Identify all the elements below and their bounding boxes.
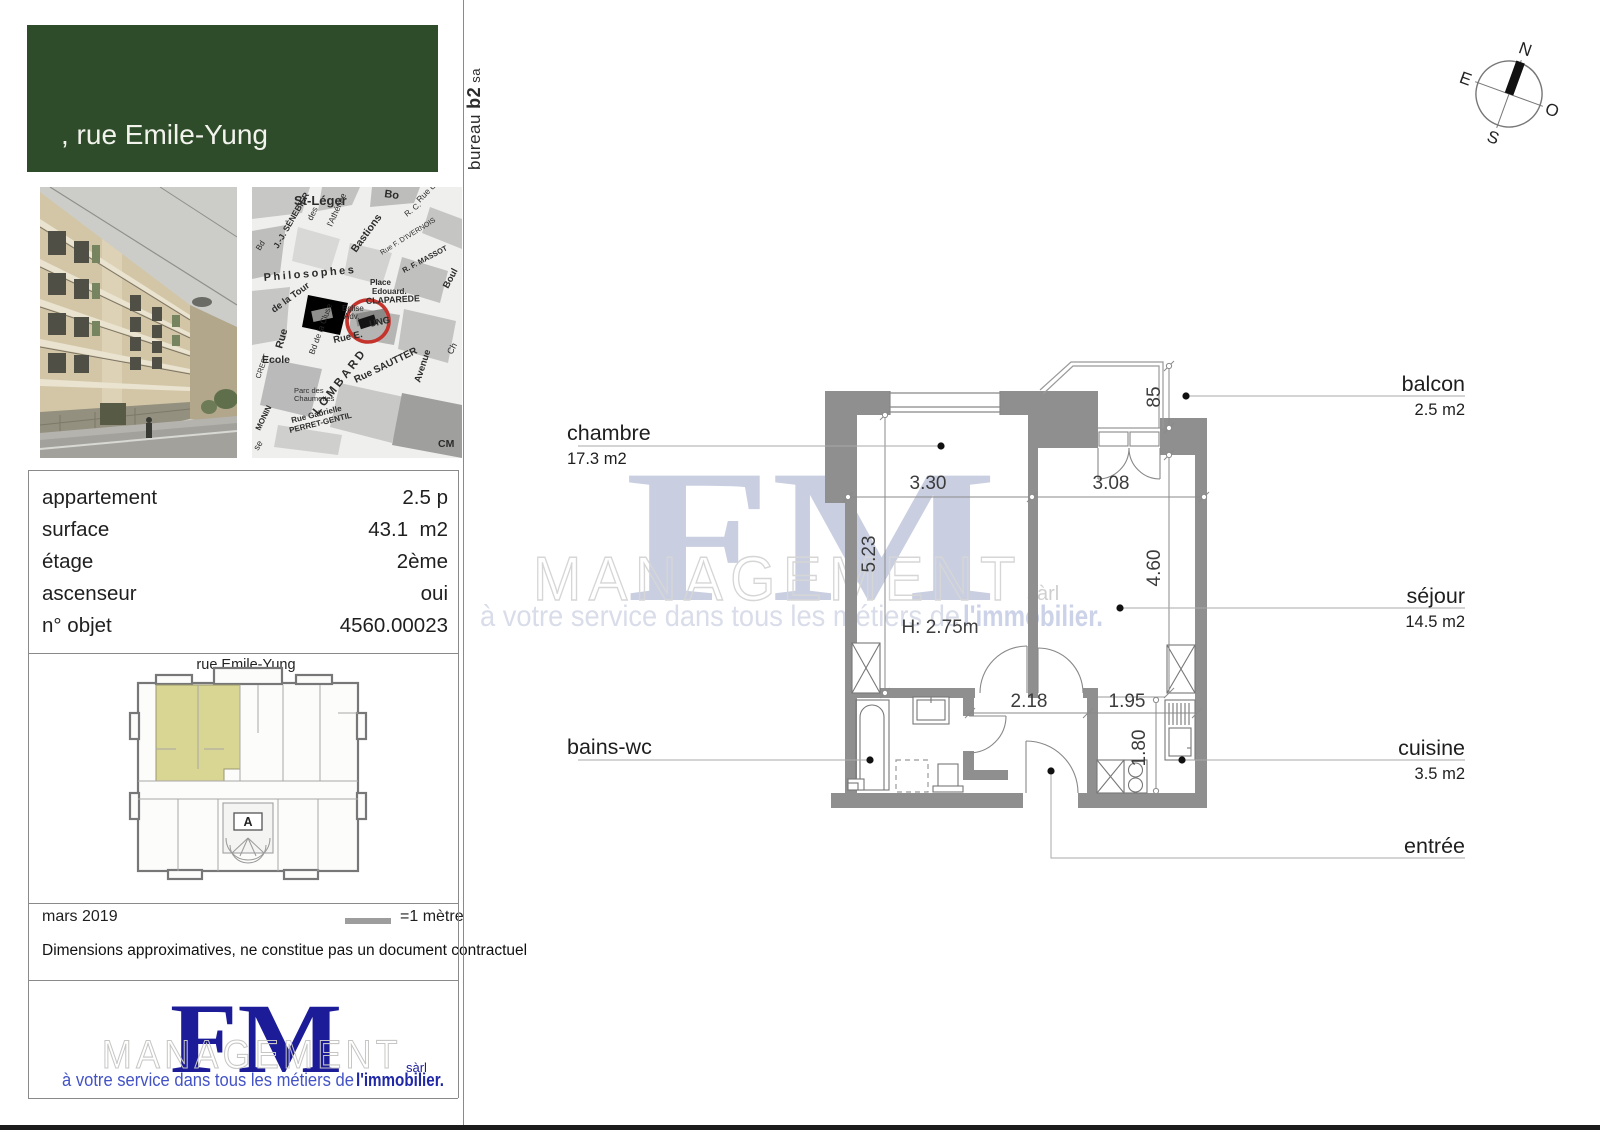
washing-machine (896, 760, 928, 792)
divider (28, 653, 458, 654)
watermark-tagline: à votre service dans tous les métiers de (480, 600, 960, 633)
disclaimer-text: Dimensions approximatives, ne constitue … (42, 942, 527, 960)
address-header: , rue Emile-Yung 1205 Genève Philosophes (27, 25, 438, 172)
room-label-balcon: balcon (1402, 372, 1465, 396)
fm-management-logo: FM MANAGEMENT sàrl à votre service dans … (28, 980, 458, 1098)
dim-chambre-depth: 5.23 (859, 536, 880, 573)
floor-plan: FM MANAGEMENT sàrl à votre service dans … (463, 0, 1600, 1130)
apartment-info-table: appartement2.5 p surface43.1 m2 étage2èm… (28, 470, 458, 653)
logo-tagline-bold: l'immobilier. (356, 1070, 444, 1090)
balcony-french-doors (1098, 432, 1160, 479)
photo-pedestrian (146, 423, 152, 438)
table-row: surface43.1 m2 (42, 514, 448, 546)
building-photo (40, 187, 237, 458)
room-label-sejour: séjour (1406, 584, 1465, 608)
svg-text:CM: CM (438, 438, 455, 450)
table-row: étage2ème (42, 546, 448, 578)
room-label-bains-wc: bains-wc (567, 735, 652, 759)
room-label-chambre: chambre (567, 421, 651, 445)
dim-sejour-depth: 4.60 (1144, 550, 1165, 587)
chambre-door (980, 646, 1027, 693)
wardrobe-sejour (1167, 645, 1195, 693)
bathroom-sink (913, 697, 949, 724)
info-value: oui (421, 582, 448, 606)
dim-cuisine-width: 1.95 (1109, 691, 1146, 712)
room-area-sejour: 14.5 m2 (1405, 613, 1465, 631)
svg-text:Place: Place (370, 278, 391, 287)
location-map: St-Léger J.-J. SÉNEBIER Bd des Bastions … (252, 187, 462, 458)
room-area-chambre: 17.3 m2 (567, 450, 627, 468)
divider (28, 470, 458, 471)
kitchen-cabinet (1097, 760, 1124, 793)
divider (28, 903, 458, 904)
table-row: n° objet4560.00023 (42, 610, 448, 642)
info-value: 2.5 p (402, 486, 448, 510)
logo-tagline: à votre service dans tous les métiers de (62, 1070, 354, 1090)
room-area-cuisine: 3.5 m2 (1415, 765, 1465, 783)
entrance-door (1026, 741, 1078, 793)
chambre-window (890, 391, 1000, 415)
scale-label: =1 mètre (400, 908, 464, 926)
scale-bar (345, 918, 391, 924)
room-area-balcon: 2.5 m2 (1415, 401, 1465, 419)
info-value: 2ème (397, 550, 448, 574)
address-line-1: , rue Emile-Yung (61, 116, 438, 153)
page-bottom-edge (0, 1125, 1600, 1130)
divider (28, 1098, 458, 1099)
svg-text:Bo: Bo (384, 188, 400, 202)
svg-text:Adv.: Adv. (344, 312, 359, 321)
dim-balcon-depth: 85 (1144, 386, 1165, 407)
info-label: n° objet (42, 614, 112, 638)
ceiling-height-label: H: 2.75m (901, 617, 978, 638)
room-label-entree: entrée (1404, 834, 1465, 858)
table-row: appartement2.5 p (42, 482, 448, 514)
svg-text:Chaumettes: Chaumettes (294, 394, 335, 403)
floorplan-document-page: , rue Emile-Yung 1205 Genève Philosophes… (0, 0, 1600, 1130)
info-value: 43.1 m2 (368, 518, 448, 542)
toilet (933, 764, 963, 792)
divider (28, 470, 29, 1098)
dim-sejour-width: 3.08 (1093, 473, 1130, 494)
divider (458, 470, 459, 1098)
info-label: étage (42, 550, 93, 574)
room-label-cuisine: cuisine (1398, 736, 1465, 760)
wardrobe-chambre (852, 643, 880, 693)
table-row: ascenseuroui (42, 578, 448, 610)
dim-chambre-width: 3.30 (910, 473, 947, 494)
dim-hall-width: 2.18 (1011, 691, 1048, 712)
date-label: mars 2019 (42, 908, 118, 926)
info-label: ascenseur (42, 582, 137, 606)
dim-cuisine-depth: 1.80 (1129, 730, 1150, 767)
photo-tree (214, 389, 237, 409)
info-value: 4560.00023 (340, 614, 448, 638)
info-label: appartement (42, 486, 157, 510)
divider (28, 980, 458, 981)
sejour-door (1038, 648, 1083, 693)
info-label: surface (42, 518, 109, 542)
building-overview-plan: rue Emile-Yung (28, 653, 458, 903)
mini-plan-stair-label: A (243, 815, 252, 829)
bathroom-door (969, 716, 1006, 753)
kitchen-sink-unit (1165, 700, 1195, 760)
